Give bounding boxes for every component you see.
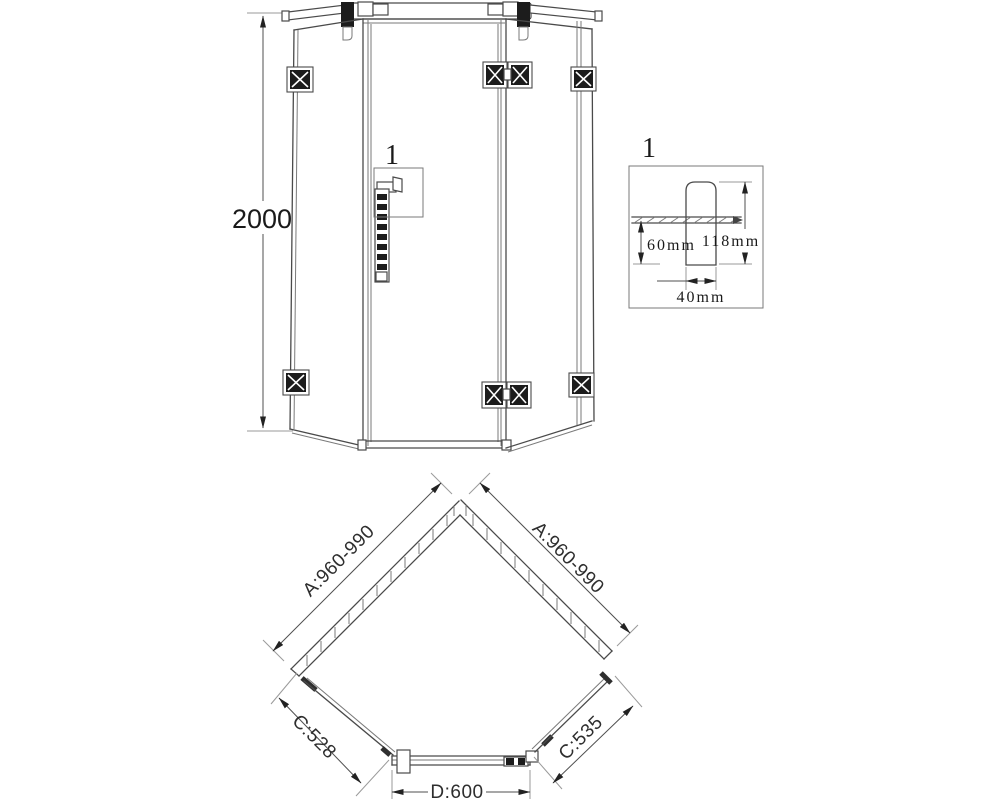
top-rail-right-cap <box>595 11 602 21</box>
extension-line <box>617 625 638 646</box>
handle-bottom-cap <box>376 272 387 281</box>
rail-clamp-left <box>341 2 354 27</box>
right-glass-dimension: C:535 <box>534 676 642 789</box>
depth-dimension-label: 60mm <box>647 237 696 254</box>
left-panel-bottom-edge <box>290 429 363 446</box>
hinge-bottom-left <box>283 370 309 395</box>
height-dimension-label: 2000 <box>232 204 292 234</box>
handle-grip-segment <box>377 204 387 210</box>
door-width-dimension-label: D:600 <box>430 782 483 800</box>
rail-sleeve <box>488 4 503 15</box>
hinge-top-right <box>571 67 596 91</box>
right-panel-bottom-edge <box>506 421 592 448</box>
left-wall-dimension: A:960-990 <box>263 473 452 661</box>
handle-grip-segment <box>377 194 387 200</box>
right-panel-bottom-edge2 <box>508 425 592 452</box>
left-panel-bottom-edge2 <box>292 433 363 450</box>
rail-sleeve <box>503 2 518 16</box>
rail-clamp-left-hook <box>343 27 352 40</box>
left-glass-dimension-label: C:528 <box>288 711 340 763</box>
top-rail-left-bar <box>288 5 345 20</box>
hinge-connector <box>504 69 511 80</box>
overall-height-label: 118mm <box>702 233 760 250</box>
extension-line <box>469 473 490 494</box>
handle-grip-segment <box>377 264 387 270</box>
hinge-top-left <box>287 67 313 92</box>
handle-detail-view: 1 60mm 118mm <box>629 133 763 308</box>
plan-view: A:960-990 A:960-990 C:528 C:535 <box>263 473 642 800</box>
right-wall-end-cap <box>604 651 612 659</box>
height-dimension: 2000 <box>232 13 293 431</box>
rail-sleeve <box>373 4 388 15</box>
extension-line <box>534 757 562 789</box>
callout-number-label: 1 <box>385 140 399 171</box>
rail-clamp-right-hook <box>519 27 528 40</box>
handle-grip-segment <box>377 224 387 230</box>
extension-line <box>356 760 389 796</box>
corner-walls <box>291 500 612 676</box>
top-rail-right-bar <box>530 5 597 20</box>
hinge-connector <box>503 389 510 400</box>
door-handle <box>375 177 402 282</box>
door-knob <box>397 750 410 773</box>
door-hinge-block <box>518 758 525 765</box>
right-wall-dimension: A:960-990 <box>469 473 638 646</box>
front-elevation-view: 2000 <box>232 2 602 452</box>
handle-grip-segment <box>377 234 387 240</box>
width-dimension-label: 40mm <box>677 289 726 306</box>
left-door-bracket <box>382 748 390 755</box>
door-corner-bracket <box>526 751 538 762</box>
left-wall-dimension-label: A:960-990 <box>299 521 379 601</box>
door-hinge-block <box>506 758 514 765</box>
hinge-bottom-right <box>569 373 594 397</box>
technical-drawing-page: 2000 <box>0 0 1000 800</box>
dimension-line <box>273 483 441 651</box>
extension-line <box>431 473 452 494</box>
sill-end-block-left <box>358 440 366 450</box>
width-dimension: 40mm <box>657 267 725 306</box>
handle-grip-segment <box>377 254 387 260</box>
detail-title-label: 1 <box>642 133 656 164</box>
extension-line <box>271 673 297 704</box>
extension-line <box>615 676 642 707</box>
glass-section <box>632 216 743 224</box>
left-wall-inner <box>299 515 460 676</box>
rail-sleeve <box>358 2 373 16</box>
hinge-bottom-door-pair <box>482 382 531 408</box>
rail-clamp-right <box>517 2 530 27</box>
top-rail <box>282 2 602 40</box>
shower-enclosure-drawing: 2000 <box>0 0 1000 800</box>
door-width-dimension: D:600 <box>392 770 530 800</box>
handle-grip-segment <box>377 244 387 250</box>
top-rail-left-cap <box>282 11 289 21</box>
handle-arm-cap <box>393 177 402 192</box>
right-wall-dimension-label: A:960-990 <box>528 518 608 598</box>
right-wall-glass-clamp <box>601 673 611 683</box>
hinge-top-door-pair <box>483 62 532 88</box>
left-glass-dimension: C:528 <box>271 673 389 796</box>
